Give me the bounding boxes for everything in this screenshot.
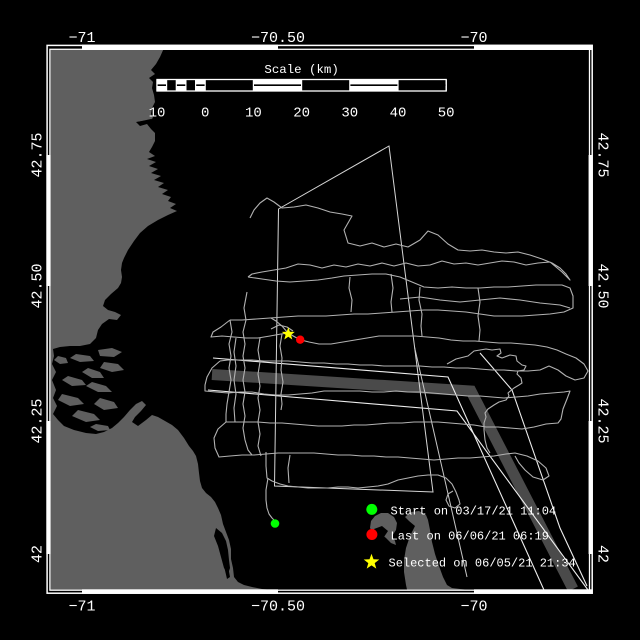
svg-text:−71: −71 [68, 30, 95, 47]
svg-text:0: 0 [201, 106, 209, 122]
svg-text:−70.50: −70.50 [251, 599, 305, 616]
svg-text:−70.50: −70.50 [251, 30, 305, 47]
svg-text:42: 42 [594, 545, 611, 563]
svg-text:Start on 03/17/21 11:04: Start on 03/17/21 11:04 [391, 505, 557, 519]
svg-text:42.75: 42.75 [30, 132, 47, 177]
svg-text:42.50: 42.50 [594, 263, 611, 308]
svg-text:50: 50 [438, 106, 455, 122]
svg-text:40: 40 [390, 106, 407, 122]
svg-text:Scale (km): Scale (km) [264, 63, 338, 77]
svg-text:20: 20 [293, 106, 310, 122]
svg-text:Last on 06/06/21 06:19: Last on 06/06/21 06:19 [391, 530, 549, 544]
svg-text:−71: −71 [68, 599, 95, 616]
svg-text:30: 30 [341, 106, 358, 122]
svg-text:10: 10 [245, 106, 262, 122]
svg-text:−70: −70 [460, 30, 487, 47]
svg-text:42: 42 [30, 545, 47, 563]
svg-text:Selected on 06/05/21 21:34: Selected on 06/05/21 21:34 [389, 557, 576, 571]
svg-text:42.50: 42.50 [30, 263, 47, 308]
svg-text:42.75: 42.75 [594, 132, 611, 177]
svg-text:42.25: 42.25 [594, 398, 611, 443]
svg-text:−70: −70 [460, 599, 487, 616]
svg-text:42.25: 42.25 [30, 398, 47, 443]
svg-text:10: 10 [149, 106, 166, 122]
